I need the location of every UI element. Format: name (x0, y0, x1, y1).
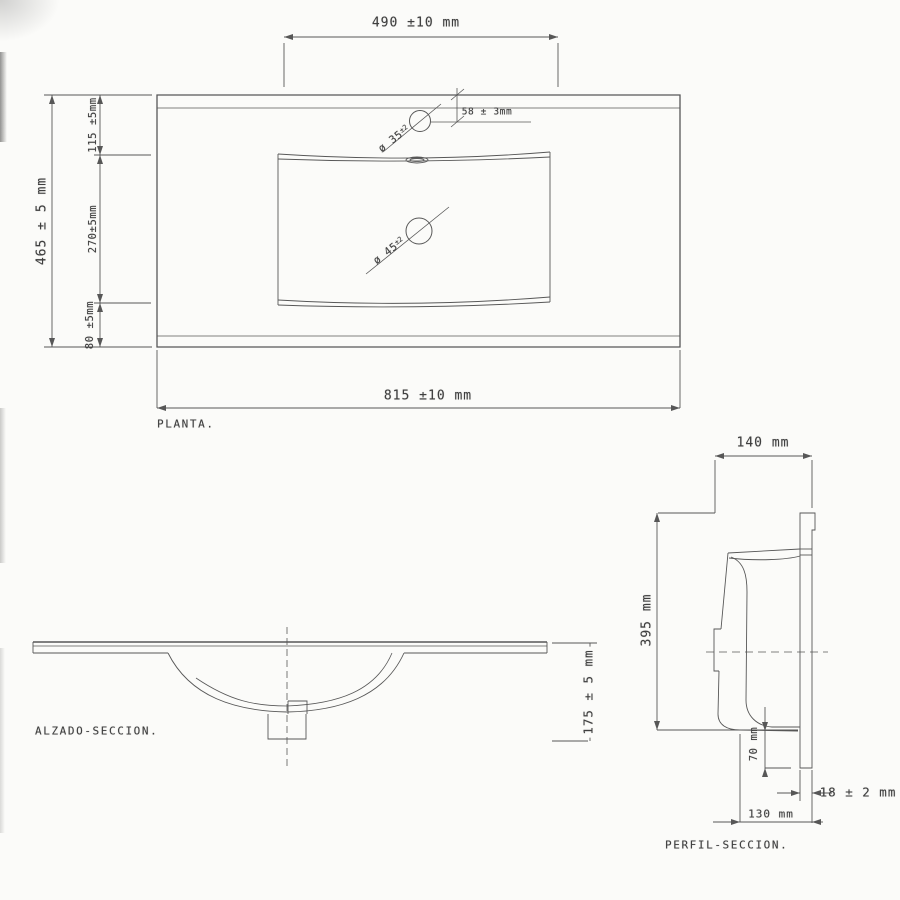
dim-115 (94, 95, 151, 155)
dim-395 (657, 513, 798, 730)
view-label-planta: PLANTA. (157, 418, 215, 431)
dim-70 (765, 707, 791, 775)
countertop-slab-section (33, 642, 547, 653)
side-section-view (657, 456, 832, 823)
basin-outline (278, 152, 550, 307)
dim-270 (94, 155, 151, 303)
view-label-alzado: ALZADO-SECCION. (35, 725, 158, 738)
drawing-sheet: 490 ±10 mm 58 ± 3mm ø 35±2 ø 45±2 465 ± … (0, 0, 900, 900)
basin-profile (714, 549, 800, 731)
dim-label-465: 465 ± 5 mm (35, 177, 50, 265)
front-panel-section (800, 513, 815, 768)
dim-label-130: 130 mm (748, 808, 794, 821)
dim-label-70: 70 mm (748, 727, 760, 762)
dim-label-80: 80 ±5mm (84, 301, 96, 349)
dim-label-270: 270±5mm (87, 205, 99, 253)
dim-label-175: 175 ± 5 mm (581, 646, 596, 737)
dim-label-490: 490 ±10 mm (372, 16, 460, 31)
front-section-view (33, 627, 597, 770)
drain-pipe-section (268, 701, 307, 739)
dim-label-18: 18 ± 2 mm (820, 785, 897, 800)
dim-label-58: 58 ± 3mm (462, 107, 513, 118)
dim-label-395: 395 mm (640, 594, 655, 647)
dim-490 (284, 37, 558, 87)
dim-140 (715, 456, 812, 513)
dim-label-115: 115 ±5mm (87, 97, 99, 152)
dim-label-140: 140 mm (737, 436, 790, 451)
bowl-section (168, 653, 404, 712)
dim-label-815: 815 ±10 mm (384, 389, 472, 404)
view-label-perfil: PERFIL-SECCION. (665, 839, 788, 852)
countertop-outline (157, 95, 680, 347)
plan-view (44, 37, 680, 408)
